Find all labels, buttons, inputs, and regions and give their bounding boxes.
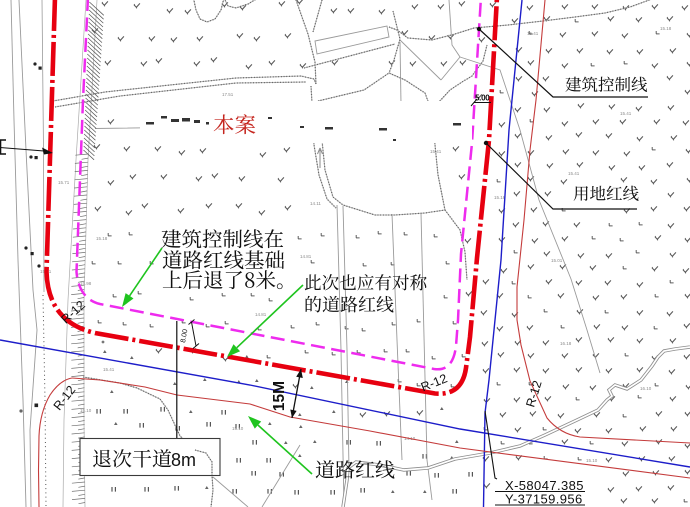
svg-text:15M: 15M — [271, 381, 288, 411]
svg-text:14.81: 14.81 — [255, 312, 267, 317]
svg-text:15.41: 15.41 — [527, 31, 539, 36]
svg-text:15.01: 15.01 — [551, 258, 563, 263]
svg-text:15.41: 15.41 — [103, 367, 115, 372]
svg-text:15.18: 15.18 — [494, 195, 506, 200]
svg-text:Y-37159.956: Y-37159.956 — [505, 492, 583, 507]
svg-text:15.10: 15.10 — [586, 458, 598, 463]
svg-text:16.18: 16.18 — [560, 341, 572, 346]
svg-text:15.41: 15.41 — [620, 111, 632, 116]
svg-text:15.18: 15.18 — [660, 26, 672, 31]
svg-text:14.81: 14.81 — [300, 254, 312, 259]
svg-text:17.51: 17.51 — [222, 92, 234, 97]
svg-text:15.71: 15.71 — [58, 180, 70, 185]
svg-text:15.10: 15.10 — [232, 426, 244, 431]
svg-text:14.81: 14.81 — [170, 258, 182, 263]
svg-text:5.00: 5.00 — [475, 94, 490, 103]
svg-text:16.10: 16.10 — [640, 386, 652, 391]
svg-text:8m: 8m — [171, 450, 196, 470]
svg-text:15.41: 15.41 — [568, 171, 580, 176]
svg-text:15.18: 15.18 — [96, 236, 108, 241]
svg-text:14.11: 14.11 — [310, 201, 321, 206]
